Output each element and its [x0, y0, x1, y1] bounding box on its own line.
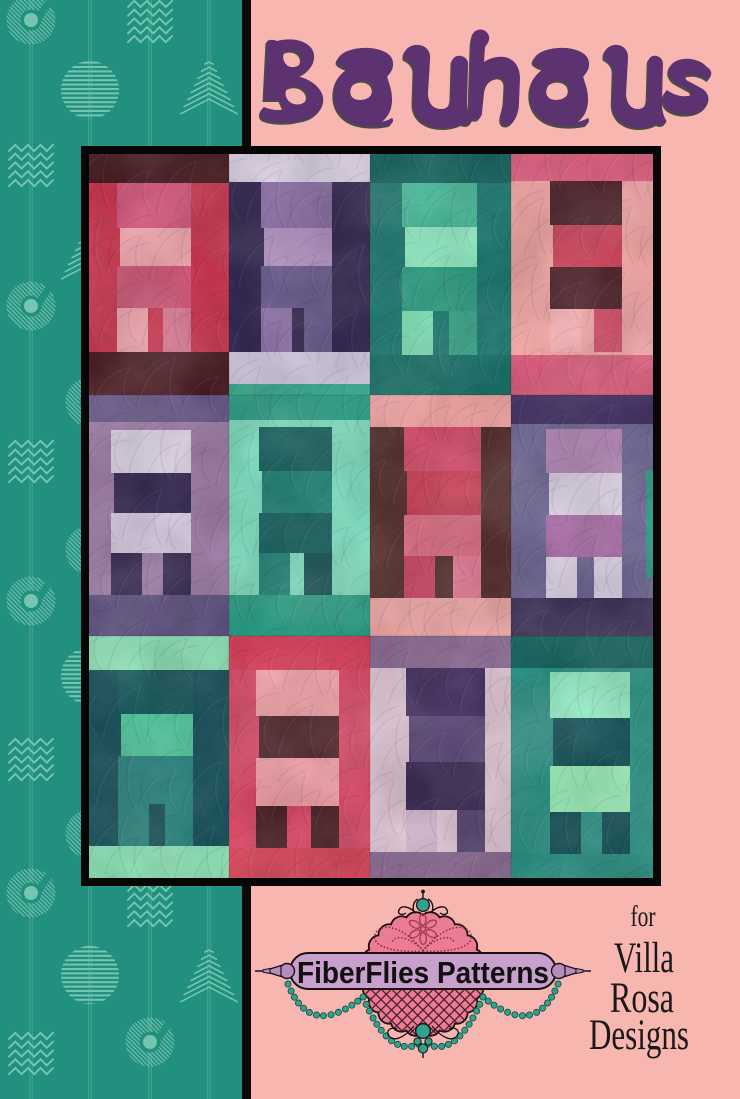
svg-text:for: for: [631, 900, 656, 933]
svg-text:FiberFlies Patterns: FiberFlies Patterns: [297, 955, 549, 990]
svg-text:Designs: Designs: [589, 1012, 689, 1059]
